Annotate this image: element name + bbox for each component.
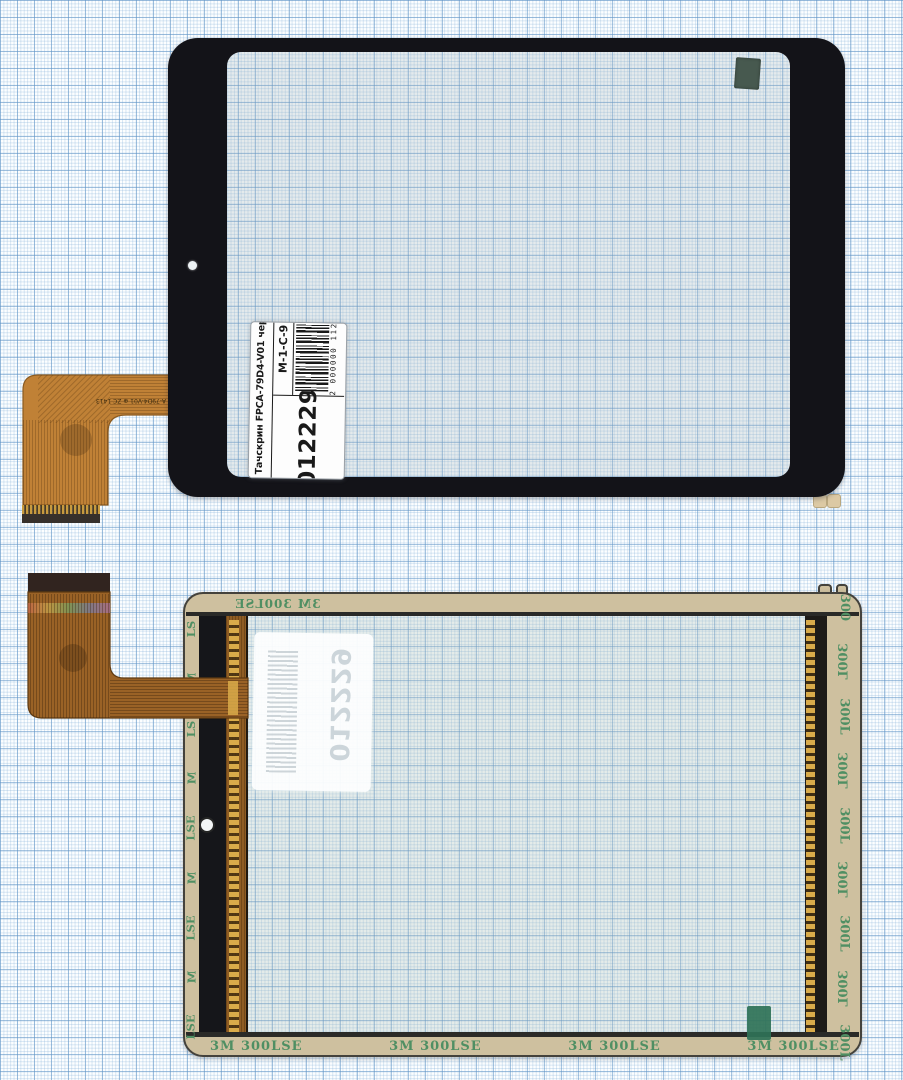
back-flex-cable bbox=[18, 563, 258, 733]
tape-right-1: 300L bbox=[837, 644, 852, 680]
front-connector-contacts bbox=[22, 505, 100, 514]
back-cable-gold-junction bbox=[228, 681, 238, 715]
tape-text-bottom: 3M 300LSE 3M 300LSE 3M 300LSE 3M 300LSE bbox=[210, 1039, 840, 1056]
back-green-tab bbox=[747, 1006, 771, 1040]
tape-text-right: 300 300L 300L 300L 300L 300L 300L 300L 3… bbox=[827, 600, 862, 1050]
front-green-tab bbox=[734, 57, 761, 90]
front-flex-cable: A-79D4-V01 ⊕ ZC 1413 bbox=[14, 368, 176, 528]
tape-right-7: 300L bbox=[837, 970, 852, 1006]
label-barcode-digits: 2 000000 112398 bbox=[328, 321, 339, 396]
back-connector-tip bbox=[28, 573, 110, 592]
tape-right-5: 300L bbox=[837, 861, 852, 897]
tape-text-bottom-2: 3M 300LSE bbox=[568, 1039, 661, 1056]
svg-text:A-79D4-V01 ⊕ ZC 1413: A-79D4-V01 ⊕ ZC 1413 bbox=[96, 397, 166, 404]
tape-right-3: 300L bbox=[837, 752, 852, 788]
tape-left-3: M bbox=[184, 772, 198, 785]
tape-text-bottom-0: 3M 300LSE bbox=[210, 1039, 303, 1056]
product-label: Тачскрин FPCA-79D4-V01 черный 012229 M-1… bbox=[248, 323, 346, 480]
tape-right-0: 300 bbox=[837, 594, 852, 621]
tape-text-bottom-1: 3M 300LSE bbox=[389, 1039, 482, 1056]
tape-left-6: LSE bbox=[184, 915, 198, 940]
front-connector-tip bbox=[22, 514, 100, 523]
back-top-edge-line bbox=[186, 612, 859, 616]
label-grade: M-1-C-9 bbox=[273, 321, 295, 395]
ghost-label-sku: 012229 bbox=[323, 647, 355, 762]
tape-left-7: M bbox=[184, 971, 198, 984]
front-adhesive-tab-2 bbox=[827, 494, 841, 508]
tape-left-8: LSE bbox=[184, 1014, 198, 1039]
product-label-face: Тачскрин FPCA-79D4-V01 черный 012229 M-1… bbox=[248, 321, 348, 480]
tape-right-4: 300L bbox=[837, 807, 852, 843]
photo-stage: A-79D4-V01 ⊕ ZC 1413 Тачскрин FPCA-79D4-… bbox=[0, 0, 903, 1080]
label-sku: 012229 bbox=[272, 396, 344, 479]
tape-right-2: 300L bbox=[837, 698, 852, 734]
ghost-label-barcode bbox=[266, 650, 298, 773]
label-title: Тачскрин FPCA-79D4-V01 черный bbox=[249, 322, 275, 477]
label-ghost-through-glass: 012229 bbox=[252, 632, 374, 792]
back-camera-hole bbox=[201, 819, 213, 831]
front-camera-hole bbox=[188, 261, 197, 270]
tape-right-6: 300L bbox=[837, 916, 852, 952]
tape-left-4: LSE bbox=[184, 815, 198, 840]
tape-left-5: M bbox=[184, 871, 198, 884]
tape-right-8: 300L bbox=[837, 1024, 852, 1060]
front-cable-marking: A-79D4-V01 ⊕ ZC 1413 bbox=[96, 397, 166, 404]
back-gold-contacts-right bbox=[806, 620, 815, 1032]
label-barcode bbox=[295, 321, 329, 391]
